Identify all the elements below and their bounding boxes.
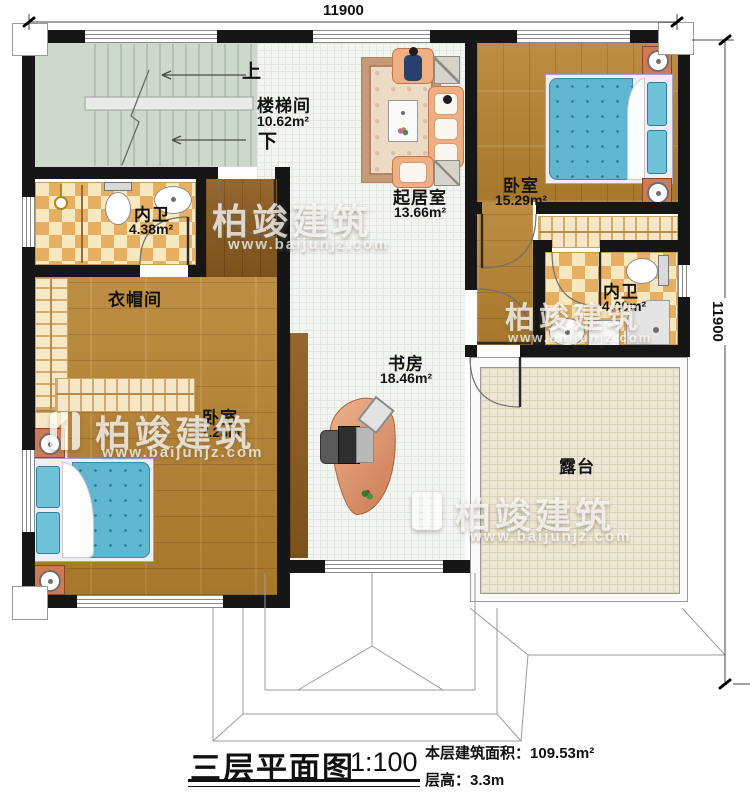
person-head [443,95,452,104]
floor-height-line: 层高：3.3m [425,769,594,790]
table-dot [401,111,405,115]
person-figure [404,55,422,81]
window [77,595,223,608]
armchair [392,48,434,84]
floor-area-label: 本层建筑面积： [425,745,530,762]
lamp-dot [656,191,661,196]
window [517,30,630,43]
wall [678,30,690,265]
window [678,265,690,297]
stair-down-label: 下 [258,127,278,154]
bed-right-pillow [647,130,667,174]
bath-left-divider [81,185,83,263]
sofa-right [428,86,464,168]
wall [465,202,482,214]
watermark-logo-icon [50,412,80,450]
window [22,450,35,532]
person-head [409,47,418,56]
bed-left-pillow [36,466,60,508]
sink-dot [171,197,176,202]
bed-right-blanket [627,78,645,180]
side-table [434,56,460,84]
wall [196,179,206,277]
wall [520,345,690,357]
room-label-cloakroom: 衣帽间 [108,286,162,311]
wall [443,560,470,573]
coffee-table [388,100,418,142]
window [313,30,430,43]
flower-decor [397,127,409,137]
dimension-extension-box [12,23,48,56]
floor-area-value: 109.53m² [530,745,594,762]
bed-right-pillow [647,82,667,126]
wall [465,345,477,357]
wall [22,265,140,277]
floor-height-label: 层高： [425,772,470,789]
floor-plan-canvas: 上 楼梯间 10.62m² 下 内卫 4.38m² 衣帽间 卧室 27.28m²… [0,0,750,792]
wall [536,202,690,214]
wall [600,240,678,252]
watermark-url: www.baijunjz.com [102,444,263,461]
drain-cord [60,184,62,197]
side-table [434,160,460,186]
watermark-url: www.baijunjz.com [470,528,631,545]
wall [188,265,206,277]
sofa-cushion [399,162,427,183]
wall [217,30,313,43]
watermark-url: www.baijunjz.com [228,236,389,253]
room-area-bath-left: 4.38m² [129,221,173,237]
terrace-floor [480,367,680,594]
floor-area-line: 本层建筑面积：109.53m² [425,742,594,763]
shower-drain-icon [54,196,68,210]
title-info-block: 本层建筑面积：109.53m² 层高：3.3m [425,742,594,790]
toilet-tank [658,255,669,286]
title-underline [188,779,420,787]
wall [22,247,35,450]
stair-up-label: 上 [242,57,262,84]
window [22,197,35,247]
monitor-panel [356,427,374,463]
study-cabinet-strip [290,333,308,558]
dimension-right: 11900 [708,298,727,345]
toilet-icon [105,192,131,225]
dimension-extension-box [658,22,694,55]
lamp-dot [48,579,53,584]
watermark-logo-icon [412,492,442,530]
room-area-bedroom-right: 15.29m² [495,192,547,208]
room-label-terrace: 露台 [559,453,595,478]
bed-right-mattress [549,78,633,180]
window [85,30,217,43]
sofa-cushion [434,118,458,140]
wall [533,240,552,252]
stairwell-floor [35,43,257,167]
wall [22,167,218,179]
floor-height-value: 3.3m [470,772,504,789]
wall [465,30,477,290]
toilet-tank [104,182,132,191]
watermark-url: www.baijunjz.com [508,330,652,345]
shower-drain-dot [653,327,659,333]
window [325,560,443,573]
room-area-study: 18.46m² [380,370,432,386]
bed-left-pillow [36,512,60,554]
dimension-extension-box [12,586,48,620]
lamp-dot [656,59,661,64]
plan-scale: 1:100 [350,747,418,778]
plant-icon [360,488,374,502]
dimension-top: 11900 [323,2,364,19]
room-area-living: 13.66m² [394,204,446,220]
